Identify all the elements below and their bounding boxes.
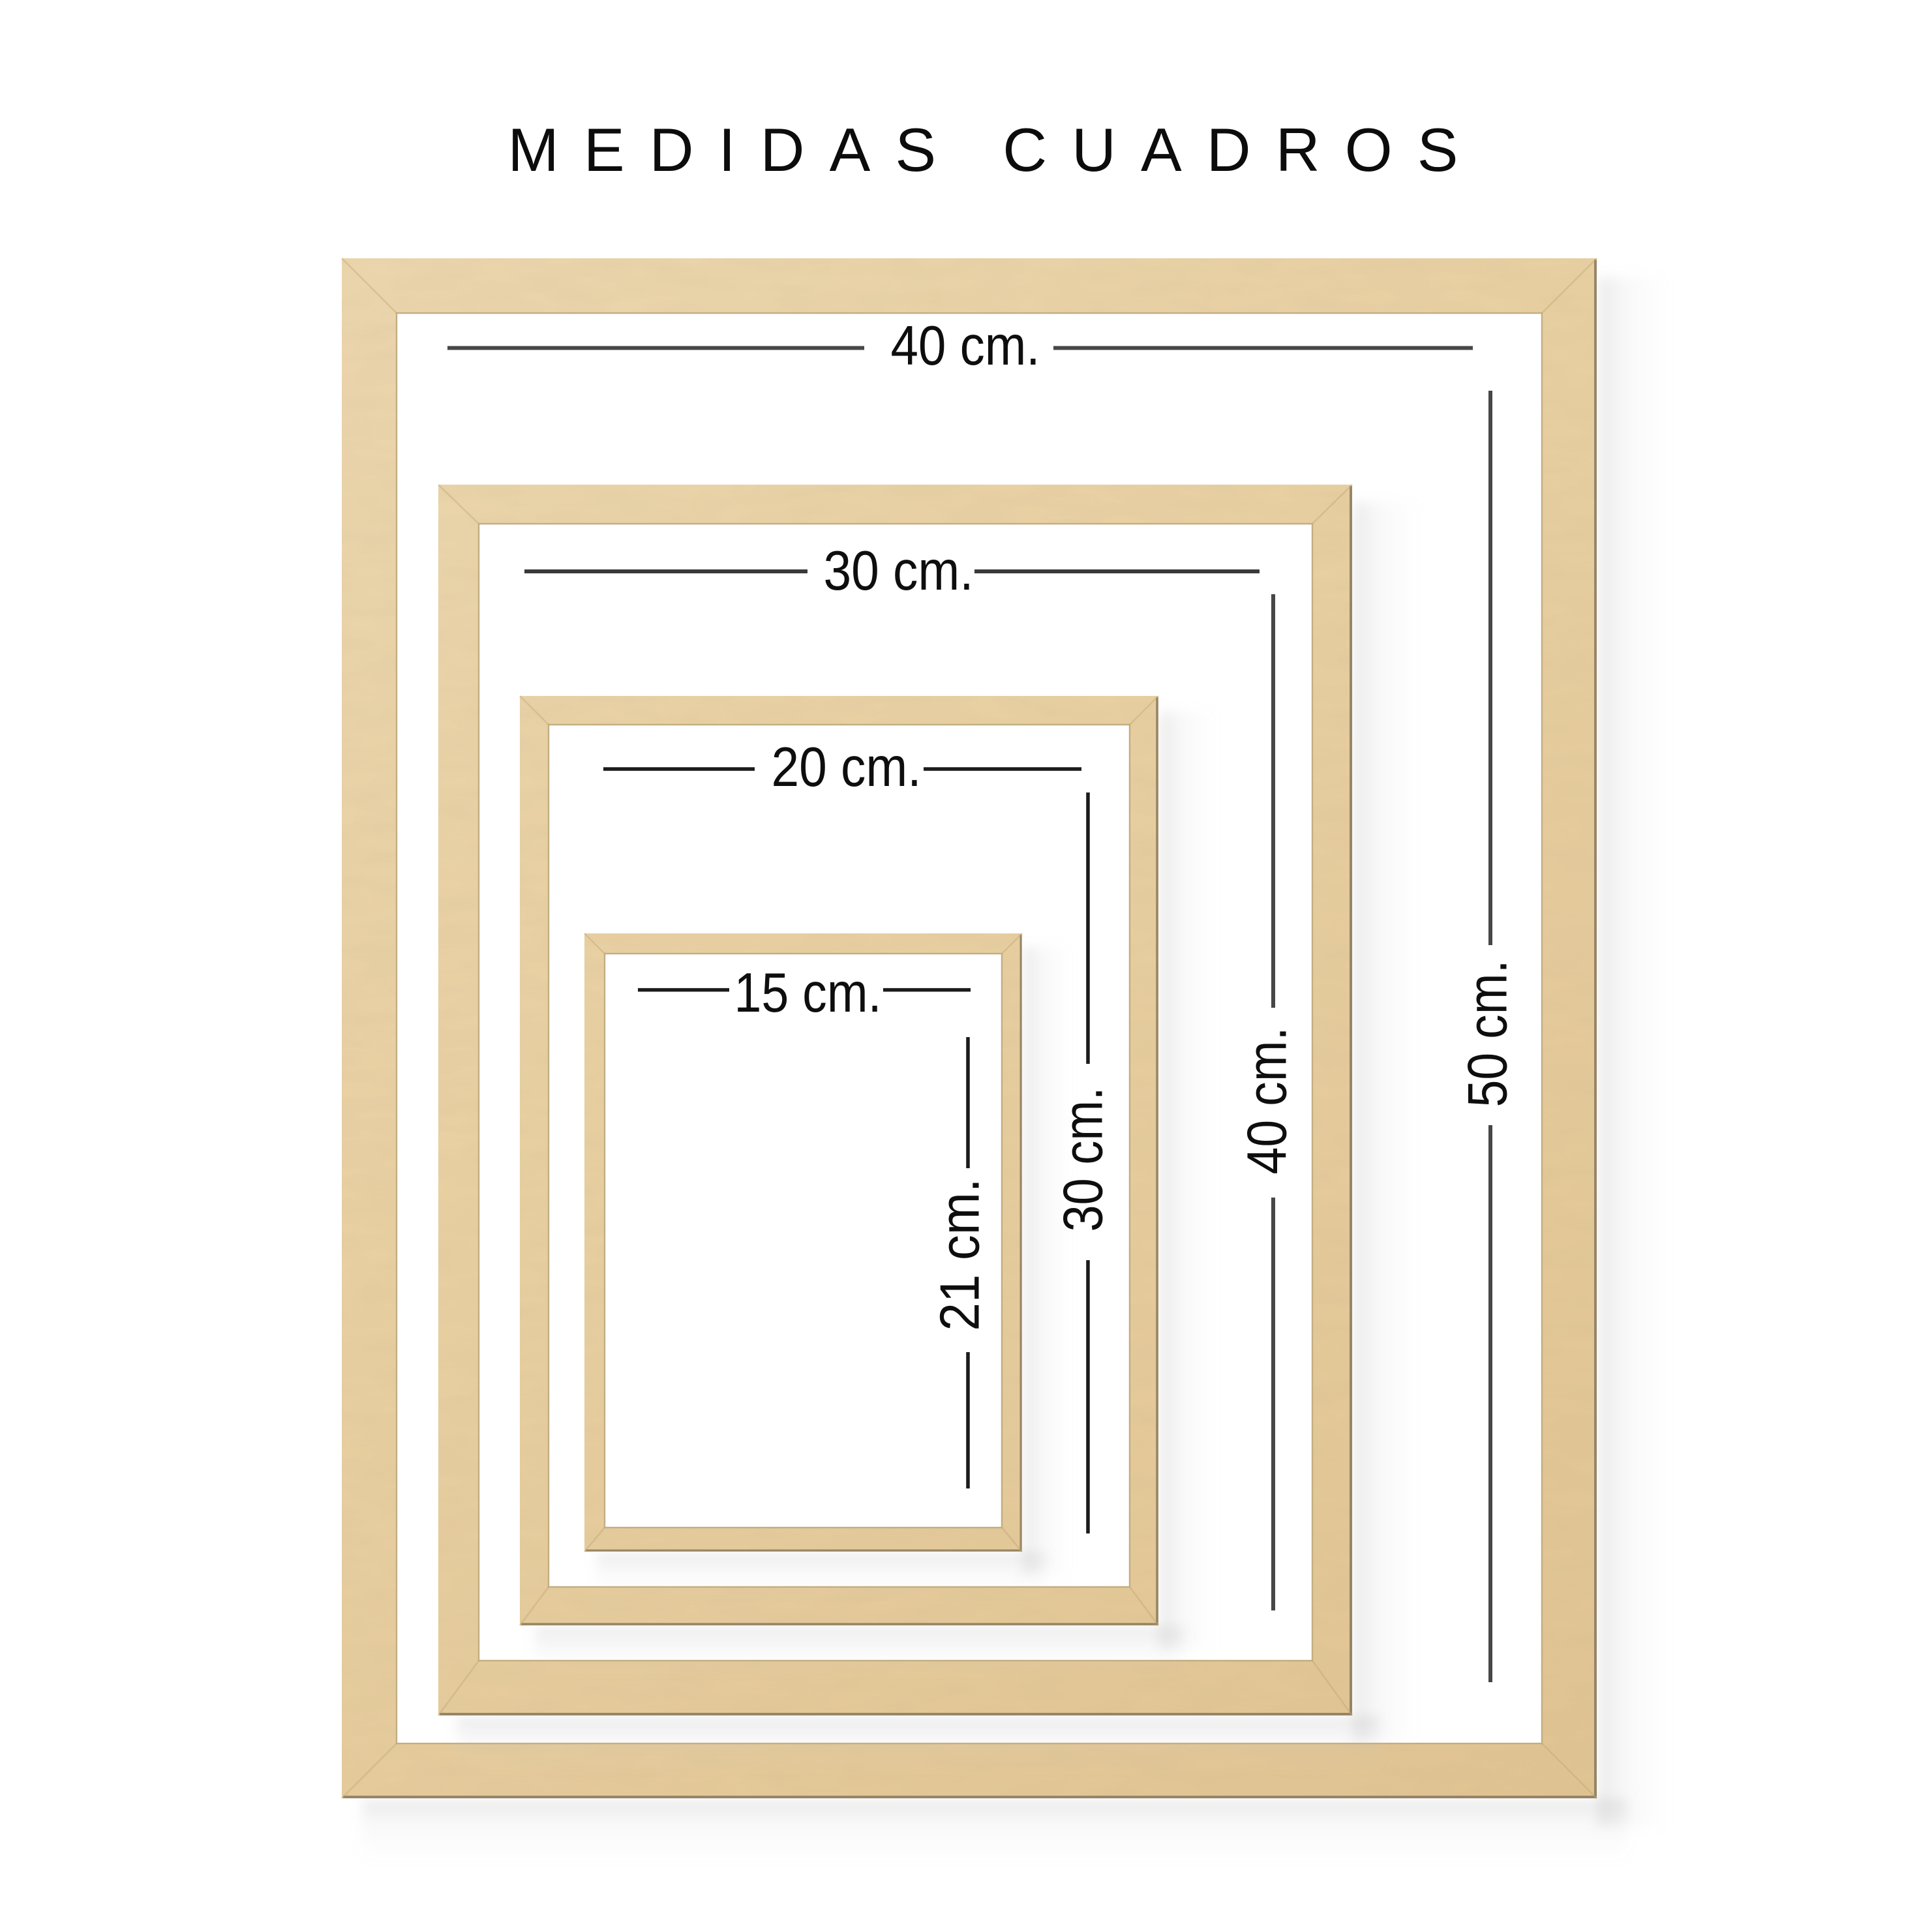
svg-text:21 cm.: 21 cm. [929, 1179, 991, 1331]
svg-text:40 cm.: 40 cm. [891, 315, 1040, 377]
svg-text:30 cm.: 30 cm. [824, 540, 974, 602]
svg-text:40 cm.: 40 cm. [1237, 1027, 1299, 1175]
svg-text:50 cm.: 50 cm. [1457, 960, 1519, 1108]
svg-text:20 cm.: 20 cm. [772, 736, 922, 798]
svg-text:30 cm.: 30 cm. [1053, 1087, 1115, 1232]
svg-text:15 cm.: 15 cm. [734, 962, 882, 1024]
